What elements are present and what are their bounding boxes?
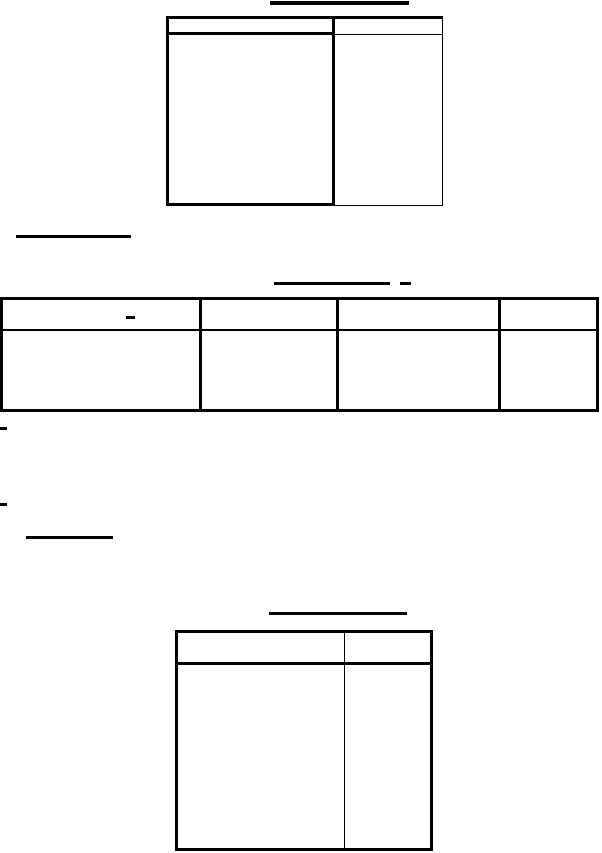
bottom-table-body-cell-1 <box>175 665 345 851</box>
bottom-table-header-cell-2 <box>345 630 433 665</box>
bottom-table-body-cell-2 <box>345 665 433 851</box>
bottom-table-header-cell-1 <box>175 630 345 665</box>
small-underline-mark <box>26 536 113 539</box>
top-table-header-cell-1 <box>166 16 335 35</box>
wide-table-header-dash-mark <box>126 316 135 319</box>
wide-table-body-cell-3 <box>339 331 501 412</box>
document-page <box>0 0 602 853</box>
wide-table-header-cell-3 <box>339 297 501 331</box>
margin-dash-mark-1 <box>0 427 7 430</box>
wide-table-body-cell-2 <box>202 331 339 412</box>
wide-table-header-cell-2 <box>202 297 339 331</box>
wide-table-header-cell-4 <box>501 297 599 331</box>
bottom-title-underline-mark <box>269 612 407 615</box>
center-underline-mark <box>274 282 390 285</box>
center-underline-dash-mark <box>400 282 411 285</box>
title-underline-mark <box>270 1 409 5</box>
wide-table <box>0 297 599 412</box>
top-table-body-cell-1 <box>166 35 335 206</box>
bottom-table <box>175 630 433 851</box>
top-table-body-cell-2 <box>335 35 443 206</box>
wide-table-body-cell-1 <box>0 331 202 412</box>
left-underline-mark <box>16 235 131 238</box>
wide-table-body-cell-4 <box>501 331 599 412</box>
wide-table-header-cell-1 <box>0 297 202 331</box>
margin-dash-mark-2 <box>0 503 7 506</box>
top-table <box>166 16 443 206</box>
top-table-header-cell-2 <box>335 16 443 35</box>
